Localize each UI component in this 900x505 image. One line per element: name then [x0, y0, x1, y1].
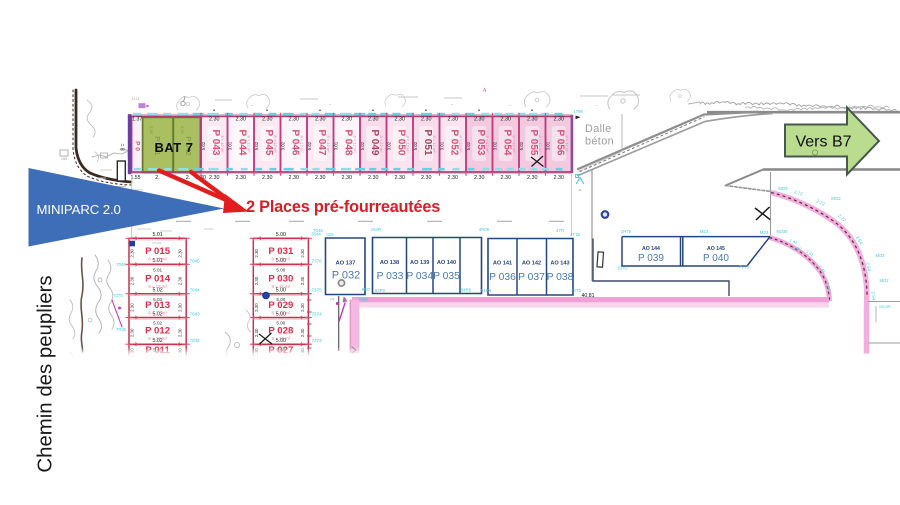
svg-text:P 013: P 013 — [145, 300, 170, 311]
svg-text:2.30: 2.30 — [262, 117, 273, 123]
svg-text:8 = 12 m²: 8 = 12 m² — [272, 256, 291, 261]
svg-text:P 012: P 012 — [145, 325, 170, 336]
svg-text:2.30: 2.30 — [178, 248, 183, 257]
svg-text:2.30: 2.30 — [254, 303, 259, 312]
svg-text:40.81: 40.81 — [582, 293, 595, 299]
svg-text:P 049: P 049 — [369, 130, 380, 156]
svg-text:MO2: MO2 — [831, 196, 841, 201]
svg-text:P 032: P 032 — [332, 270, 361, 282]
svg-text:7046: 7046 — [116, 262, 126, 267]
svg-text:2.54: 2.54 — [871, 291, 877, 301]
svg-text:2.30: 2.30 — [342, 175, 353, 181]
svg-text:8 = 12 m²: 8 = 12 m² — [299, 135, 304, 153]
svg-text:2.30: 2.30 — [178, 303, 183, 312]
svg-text:2.: 2. — [155, 175, 160, 181]
svg-text:8 = 12 m²: 8 = 12 m² — [272, 311, 291, 316]
svg-text:2.30: 2.30 — [448, 117, 459, 123]
svg-text:P 037: P 037 — [518, 272, 545, 283]
svg-text:415: 415 — [326, 232, 334, 237]
svg-text:2 Places pré-fourreautées: 2 Places pré-fourreautées — [246, 198, 440, 216]
svg-text:béton: béton — [585, 136, 614, 148]
svg-text:P 033: P 033 — [377, 271, 404, 282]
svg-text:P 036: P 036 — [489, 272, 516, 283]
svg-text:47R: 47R — [556, 228, 564, 233]
svg-text:8 = 12 m²: 8 = 12 m² — [148, 336, 167, 341]
svg-text:3.02: 3.02 — [387, 141, 392, 150]
svg-text:7V76: 7V76 — [739, 265, 750, 270]
svg-text:64R0: 64R0 — [375, 288, 386, 293]
svg-text:2.30: 2.30 — [262, 175, 273, 181]
svg-text:7043: 7043 — [190, 312, 201, 317]
svg-text:2.30: 2.30 — [501, 117, 512, 123]
svg-text:2.30: 2.30 — [421, 175, 432, 181]
svg-text:P 043: P 043 — [210, 130, 221, 156]
svg-text:2.30: 2.30 — [130, 248, 135, 257]
svg-text:P 029: P 029 — [268, 300, 293, 311]
svg-text:MO2: MO2 — [875, 253, 885, 258]
svg-text:P 056: P 056 — [554, 130, 565, 156]
svg-text:2.: 2. — [186, 175, 191, 181]
svg-text:P 050: P 050 — [395, 130, 406, 156]
svg-text:74T5: 74T5 — [571, 288, 582, 293]
svg-text:M23: M23 — [700, 229, 709, 234]
svg-text:AO 141: AO 141 — [493, 261, 512, 267]
svg-text:AO 137: AO 137 — [336, 261, 356, 267]
svg-text:51R6: 51R6 — [481, 288, 492, 293]
svg-text:2.30: 2.30 — [254, 248, 259, 257]
svg-text:Vers B7: Vers B7 — [795, 134, 851, 151]
svg-text:2.30: 2.30 — [554, 175, 565, 181]
svg-text:3.02: 3.02 — [493, 141, 498, 150]
svg-text:8 = 12 m²: 8 = 12 m² — [272, 336, 291, 341]
svg-text:2.30: 2.30 — [178, 328, 183, 337]
svg-text:94R5: 94R5 — [461, 288, 472, 293]
svg-text:2.30: 2.30 — [554, 117, 565, 123]
svg-text:5.02: 5.02 — [360, 141, 365, 150]
svg-text:7045: 7045 — [190, 258, 201, 263]
svg-text:P 051: P 051 — [422, 130, 433, 156]
svg-text:2.30: 2.30 — [289, 117, 300, 123]
svg-text:2.30: 2.30 — [300, 303, 305, 312]
svg-text:8 = 12 m²: 8 = 12 m² — [564, 135, 569, 153]
svg-text:3.01: 3.01 — [228, 141, 233, 150]
svg-text:5.02: 5.02 — [466, 141, 471, 150]
svg-text:·: · — [451, 102, 453, 108]
svg-text:AO 140: AO 140 — [437, 260, 456, 266]
svg-text:2.30: 2.30 — [254, 328, 259, 337]
svg-text:8 = 12 m²: 8 = 12 m² — [458, 135, 463, 153]
svg-text:4T15: 4T15 — [570, 232, 581, 237]
svg-text:3.01: 3.01 — [334, 141, 339, 150]
svg-text:MO3: MO3 — [778, 186, 788, 191]
svg-text:8 = 12 m²: 8 = 12 m² — [352, 135, 357, 153]
svg-text:8 = 12 m²: 8 = 12 m² — [220, 135, 225, 153]
svg-text:2.30: 2.30 — [474, 175, 485, 181]
svg-text:7042: 7042 — [190, 338, 201, 343]
svg-text:2.30: 2.30 — [448, 175, 459, 181]
svg-text:Dalle: Dalle — [585, 123, 612, 135]
svg-text:2.30: 2.30 — [180, 126, 185, 135]
svg-text:7044: 7044 — [190, 288, 201, 293]
svg-text:7373: 7373 — [312, 338, 323, 343]
svg-text:7374: 7374 — [312, 312, 323, 317]
svg-text:2.30: 2.30 — [395, 117, 406, 123]
svg-text:3544: 3544 — [311, 232, 321, 237]
svg-text:8 = 12 m²: 8 = 12 m² — [432, 135, 437, 153]
svg-text:2.30: 2.30 — [178, 276, 183, 285]
svg-text:P 015: P 015 — [145, 246, 171, 257]
svg-text:2.30: 2.30 — [421, 117, 432, 123]
svg-text:3.02: 3.02 — [281, 141, 286, 150]
svg-text:2.30: 2.30 — [254, 276, 259, 285]
svg-text:P 039: P 039 — [638, 253, 664, 264]
svg-text:5.01: 5.01 — [152, 232, 162, 238]
svg-text:7375: 7375 — [312, 288, 323, 293]
svg-text:Li u: Li u — [132, 96, 139, 101]
svg-text:MO2: MO2 — [879, 278, 889, 283]
svg-text:P 052: P 052 — [448, 130, 459, 156]
svg-text:2.30: 2.30 — [527, 117, 538, 123]
svg-text:8 = 12 m²: 8 = 12 m² — [273, 135, 278, 153]
svg-text:2.30: 2.30 — [209, 117, 220, 123]
svg-text:8 = 12 m²: 8 = 12 m² — [485, 135, 490, 153]
svg-text:·: · — [329, 102, 331, 108]
svg-text:BAT 7: BAT 7 — [154, 140, 193, 155]
svg-text:Δ: Δ — [579, 187, 582, 192]
svg-text:2.30: 2.30 — [315, 175, 326, 181]
svg-text:2.30: 2.30 — [527, 175, 538, 181]
svg-text:7375: 7375 — [113, 293, 123, 298]
svg-text:·: · — [251, 103, 253, 109]
svg-text:8 = 12 m²: 8 = 12 m² — [326, 135, 331, 153]
svg-text:5.02: 5.02 — [307, 141, 312, 150]
svg-text:5.00: 5.00 — [276, 268, 285, 273]
svg-text:MO3R: MO3R — [879, 304, 891, 309]
svg-text:2.30: 2.30 — [130, 303, 135, 312]
svg-text:2.30: 2.30 — [315, 117, 326, 123]
svg-text:2.30: 2.30 — [149, 126, 154, 135]
svg-text:5.00: 5.00 — [276, 232, 286, 238]
svg-text:P 034: P 034 — [406, 271, 433, 282]
svg-text:8 = 12 m²: 8 = 12 m² — [272, 284, 291, 289]
svg-text:8 = 12 m²: 8 = 12 m² — [148, 256, 167, 261]
svg-text:2.30: 2.30 — [368, 175, 379, 181]
svg-text:P 014: P 014 — [145, 274, 171, 285]
svg-text:8 = 12 m²: 8 = 12 m² — [148, 311, 167, 316]
svg-text:1R75: 1R75 — [621, 229, 632, 234]
svg-text:4R06: 4R06 — [479, 227, 490, 232]
svg-text:M22: M22 — [760, 230, 769, 235]
svg-text:2.30: 2.30 — [236, 175, 247, 181]
svg-text:2.30: 2.30 — [209, 175, 220, 181]
svg-text:5.01: 5.01 — [153, 268, 162, 273]
svg-text:2.30: 2.30 — [501, 175, 512, 181]
svg-text:2.30: 2.30 — [395, 175, 406, 181]
svg-text:5.02: 5.02 — [519, 141, 524, 150]
svg-text:Chemin des peupliers: Chemin des peupliers — [35, 275, 57, 472]
svg-text:2.30: 2.30 — [474, 117, 485, 123]
svg-text:P 028: P 028 — [268, 325, 294, 336]
svg-text:P 031: P 031 — [268, 246, 294, 257]
svg-text:P 044: P 044 — [236, 130, 247, 156]
svg-text:AO 143: AO 143 — [550, 261, 569, 267]
svg-text:P 038: P 038 — [547, 272, 574, 283]
svg-text:74: 74 — [330, 298, 334, 302]
svg-text:1798: 1798 — [573, 109, 583, 114]
svg-text:7498: 7498 — [358, 297, 368, 302]
svg-text:8 = 12 m²: 8 = 12 m² — [379, 135, 384, 153]
svg-text:5.02: 5.02 — [254, 141, 259, 150]
svg-text:7376: 7376 — [312, 258, 323, 263]
svg-text:5.02: 5.02 — [413, 141, 418, 150]
svg-text:P 055: P 055 — [528, 130, 539, 156]
svg-text:2.30: 2.30 — [342, 117, 353, 123]
svg-text:AO 144: AO 144 — [642, 246, 660, 252]
svg-text:NO35: NO35 — [777, 229, 789, 234]
svg-text:8 = 12 m²: 8 = 12 m² — [148, 284, 167, 289]
svg-text:8 = 12 m²: 8 = 12 m² — [405, 135, 410, 153]
svg-text:AO 145: AO 145 — [707, 246, 725, 252]
svg-text:MINIPARC 2.0: MINIPARC 2.0 — [37, 202, 121, 217]
svg-text:2.30: 2.30 — [368, 117, 379, 123]
svg-text:7R35: 7R35 — [116, 327, 127, 332]
svg-text:P 053: P 053 — [475, 130, 486, 156]
svg-text:P 048: P 048 — [342, 130, 353, 156]
svg-text:P 045: P 045 — [263, 130, 274, 156]
svg-text:3.01: 3.01 — [546, 141, 551, 150]
svg-text:P 0: P 0 — [134, 141, 141, 151]
svg-text:2.30: 2.30 — [300, 248, 305, 257]
svg-text:8 = 12 m²: 8 = 12 m² — [511, 135, 516, 153]
svg-text:2.30: 2.30 — [289, 175, 300, 181]
svg-text:9M7: 9M7 — [362, 287, 371, 292]
svg-text:2.30: 2.30 — [130, 276, 135, 285]
svg-text:2.30: 2.30 — [300, 276, 305, 285]
svg-text:2.30: 2.30 — [130, 328, 135, 337]
svg-text:5.02: 5.02 — [201, 141, 206, 150]
svg-text:P 054: P 054 — [501, 130, 512, 156]
svg-text:154R: 154R — [371, 227, 382, 232]
svg-text:P 030: P 030 — [268, 274, 293, 285]
svg-text:P 047: P 047 — [316, 130, 327, 156]
svg-text:AO 142: AO 142 — [522, 261, 541, 267]
svg-text:1075: 1075 — [617, 266, 627, 271]
svg-text:153: 153 — [61, 157, 67, 161]
svg-text:8 = 12 m²: 8 = 12 m² — [246, 135, 251, 153]
svg-text:1.37: 1.37 — [132, 117, 142, 123]
svg-text:8 = 12 m²: 8 = 12 m² — [538, 135, 543, 153]
svg-text:3.01: 3.01 — [440, 141, 445, 150]
svg-text:2.30: 2.30 — [300, 328, 305, 337]
svg-text:8 =: 8 = — [121, 143, 127, 150]
svg-text:P 035: P 035 — [433, 271, 460, 282]
svg-text:P 046: P 046 — [289, 130, 300, 156]
svg-text:2580: 2580 — [793, 246, 803, 251]
svg-text:AO 138: AO 138 — [380, 260, 399, 266]
svg-text:P 040: P 040 — [703, 253, 729, 264]
svg-text:AO 139: AO 139 — [410, 260, 429, 266]
svg-text:2.30: 2.30 — [236, 117, 247, 123]
